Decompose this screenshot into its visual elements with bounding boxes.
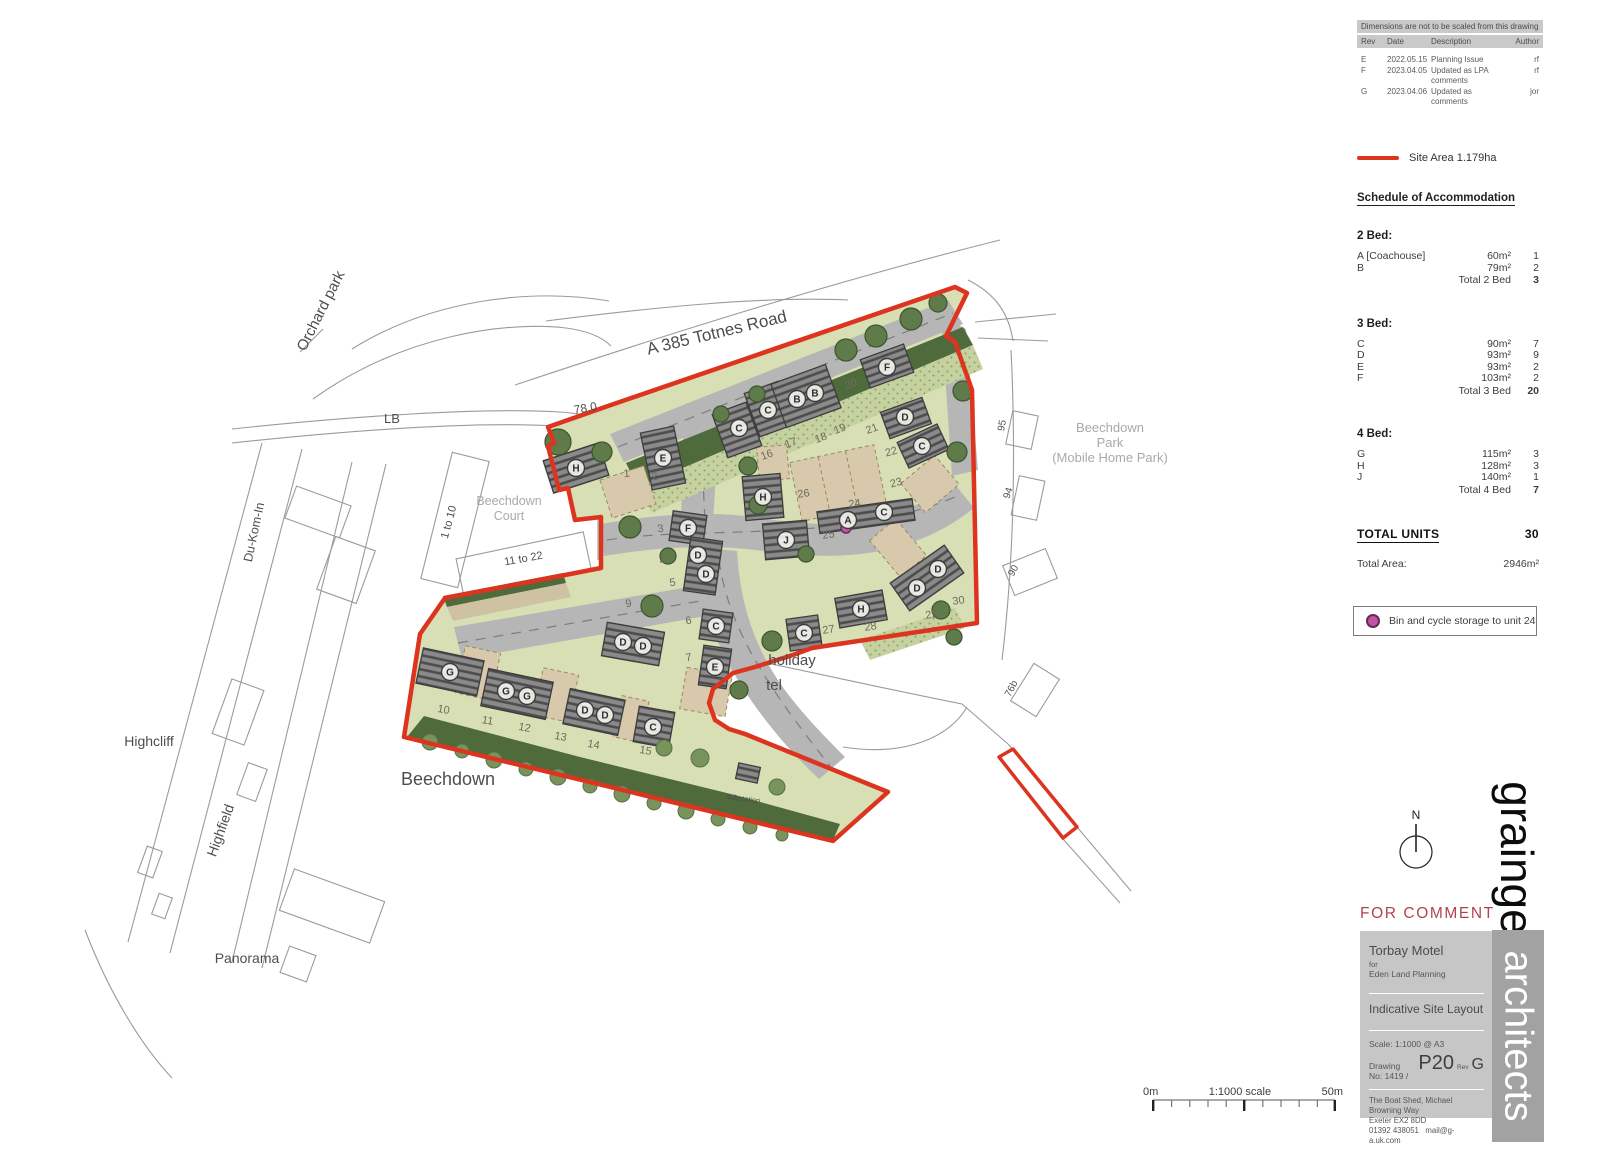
- svg-text:D: D: [702, 570, 709, 581]
- status-stamp: FOR COMMENT: [1360, 905, 1495, 923]
- svg-text:C: C: [880, 508, 887, 519]
- plot-number: 11: [481, 714, 494, 728]
- divider: [1369, 1089, 1484, 1090]
- svg-text:G: G: [446, 668, 454, 679]
- revision-rows: E2022.05.15Planning IssuerfF2023.04.05Up…: [1357, 55, 1543, 108]
- site-area-line-swatch: [1357, 156, 1399, 160]
- revision-column: Author: [1507, 37, 1539, 46]
- total-units-row: TOTAL UNITS 30: [1357, 527, 1539, 543]
- unit-marker: C: [708, 618, 725, 635]
- schedule-row: B79m²2: [1357, 263, 1539, 275]
- svg-text:D: D: [934, 565, 941, 576]
- unit-marker: D: [615, 634, 632, 651]
- street-label: (Mobile Home Park): [1052, 450, 1168, 465]
- plot-number: 27: [822, 623, 836, 637]
- drawing-number-row: Drawing No: 1419 / P20 Rev G: [1369, 1052, 1484, 1081]
- street-label: tel: [766, 677, 782, 694]
- brand-strip: architects: [1492, 930, 1544, 1142]
- schedule-total-row: Total 2 Bed3: [1357, 275, 1539, 287]
- practice-address: The Boat Shed, Michael Browning Way Exet…: [1369, 1096, 1484, 1146]
- contact-line: 01392 438051 mail@g-a.uk.com: [1369, 1126, 1484, 1146]
- unit-marker: D: [690, 547, 707, 564]
- street-label: 11 to 22: [503, 550, 543, 569]
- svg-text:J: J: [783, 536, 789, 547]
- unit-marker: C: [914, 438, 931, 455]
- drawing-sheet: Orchard parkLBA 385 Totnes Road78.0Du-Ko…: [0, 0, 1600, 1166]
- svg-text:H: H: [857, 605, 864, 616]
- svg-text:D: D: [901, 413, 908, 424]
- svg-text:B: B: [793, 395, 800, 406]
- unit-marker: D: [909, 580, 926, 597]
- svg-text:D: D: [639, 642, 646, 653]
- unit-marker: D: [597, 707, 614, 724]
- scale-row: Scale: 1:1000 @ A3: [1369, 1039, 1484, 1049]
- plot-number: 10: [436, 703, 450, 717]
- revision-table: Dimensions are not to be scaled from thi…: [1357, 20, 1543, 108]
- unit-marker: A: [840, 512, 857, 529]
- unit-marker: C: [796, 625, 813, 642]
- svg-text:G: G: [523, 692, 531, 703]
- schedule-group: 2 Bed:A [Coachouse]60m²1B79m²2Total 2 Be…: [1357, 230, 1539, 287]
- divider: [1369, 993, 1484, 994]
- street-label: 76b: [1003, 678, 1021, 698]
- schedule-body: 2 Bed:A [Coachouse]60m²1B79m²2Total 2 Be…: [1357, 230, 1539, 570]
- plot-number: 13: [553, 730, 567, 744]
- north-arrow-icon: [1396, 822, 1436, 872]
- unit-marker: C: [645, 719, 662, 736]
- divider: [1369, 1030, 1484, 1031]
- unit-marker: D: [897, 409, 914, 426]
- svg-text:C: C: [735, 424, 742, 435]
- street-label: Beechdown: [1076, 420, 1144, 435]
- schedule-row: J140m²1: [1357, 472, 1539, 484]
- scale-bar-right: 50m: [1322, 1086, 1343, 1098]
- scale-bar-center: 1:1000 scale: [1209, 1086, 1271, 1098]
- unit-marker: E: [655, 450, 672, 467]
- plot-number: 14: [586, 738, 600, 752]
- scale-bar: 0m 1:1000 scale 50m: [1143, 1086, 1343, 1119]
- svg-text:H: H: [572, 464, 579, 475]
- unit-marker: E: [707, 659, 724, 676]
- title-block: Torbay Motel for Eden Land Planning Indi…: [1360, 931, 1493, 1118]
- svg-text:H: H: [759, 493, 766, 504]
- revision-row: F2023.04.05Updated as LPA commentsrf: [1361, 66, 1539, 87]
- plot-number: 25: [822, 528, 836, 542]
- scaling-note: Dimensions are not to be scaled from thi…: [1357, 20, 1543, 33]
- bin-storage-legend: Bin and cycle storage to unit 24: [1353, 606, 1537, 636]
- unit-marker: F: [879, 359, 896, 376]
- plot-number: 24: [848, 497, 862, 511]
- svg-text:D: D: [581, 706, 588, 717]
- rev-label: Rev: [1457, 1064, 1469, 1071]
- street-label: 90: [1006, 563, 1021, 578]
- address-line-1: The Boat Shed, Michael Browning Way: [1369, 1096, 1484, 1116]
- street-label: Highcliff: [124, 733, 174, 749]
- schedule-group: 3 Bed:C90m²7D93m²9E93m²2F103m²2Total 3 B…: [1357, 318, 1539, 398]
- svg-text:B: B: [811, 389, 818, 400]
- street-label: 1 to 10: [439, 504, 459, 540]
- revision-row: E2022.05.15Planning Issuerf: [1361, 55, 1539, 66]
- total-area-label: Total Area:: [1357, 558, 1407, 570]
- plot-number: 12: [517, 721, 531, 735]
- drawing-title: Indicative Site Layout: [1369, 1002, 1484, 1016]
- for-label: for: [1369, 960, 1484, 969]
- unit-marker: C: [731, 420, 748, 437]
- unit-marker: G: [442, 664, 459, 681]
- street-label: Beechdown: [401, 769, 495, 789]
- revision-columns: RevDateDescriptionAuthor: [1357, 35, 1543, 48]
- total-units-value: 30: [1525, 527, 1539, 543]
- svg-text:D: D: [913, 584, 920, 595]
- unit-marker: F: [680, 520, 697, 537]
- unit-marker: J: [778, 532, 795, 549]
- plot-number: 15: [638, 744, 652, 758]
- schedule-total-row: Total 3 Bed20: [1357, 386, 1539, 398]
- svg-text:D: D: [601, 711, 608, 722]
- unit-marker: H: [755, 489, 772, 506]
- svg-text:F: F: [884, 363, 890, 374]
- drawing-no-label: Drawing No: 1419 /: [1369, 1061, 1415, 1081]
- total-area-value: 2946m²: [1503, 558, 1539, 570]
- revision-column: Description: [1431, 37, 1507, 46]
- north-label: N: [1396, 808, 1436, 822]
- schedule-row: E93m²2: [1357, 362, 1539, 374]
- schedule-row: H128m²3: [1357, 461, 1539, 473]
- svg-text:E: E: [660, 454, 667, 465]
- scale-bar-ruler: [1143, 1098, 1343, 1114]
- address-line-2: Exeter EX2 8DD: [1369, 1116, 1484, 1126]
- plot-number: 30: [952, 594, 966, 608]
- revision-column: Date: [1387, 37, 1431, 46]
- schedule-row: A [Coachouse]60m²1: [1357, 251, 1539, 263]
- svg-text:D: D: [619, 638, 626, 649]
- plot-number: 26: [797, 487, 811, 501]
- client-name: Eden Land Planning: [1369, 969, 1484, 979]
- scale-bar-left: 0m: [1143, 1086, 1158, 1098]
- street-label: Beechdown: [476, 494, 541, 508]
- schedule-groups: 2 Bed:A [Coachouse]60m²1B79m²2Total 2 Be…: [1357, 230, 1539, 496]
- street-label: Panorama: [215, 950, 280, 966]
- unit-marker: H: [568, 460, 585, 477]
- schedule-row: F103m²2: [1357, 373, 1539, 385]
- bin-dot-icon: [1366, 614, 1380, 628]
- brand-suffix: architects: [1496, 950, 1541, 1121]
- unit-marker: D: [577, 702, 594, 719]
- schedule-total-row: Total 4 Bed7: [1357, 485, 1539, 497]
- revision-column: Rev: [1361, 37, 1387, 46]
- street-label: Park: [1097, 435, 1124, 450]
- unit-marker: G: [498, 683, 515, 700]
- svg-text:C: C: [918, 442, 925, 453]
- brand-name: grainge: [1490, 781, 1544, 934]
- unit-marker: D: [635, 638, 652, 655]
- svg-text:G: G: [502, 687, 510, 698]
- svg-text:C: C: [649, 723, 656, 734]
- street-label: Orchard park: [294, 268, 349, 354]
- unit-marker: C: [760, 402, 777, 419]
- sheet-number: P20: [1418, 1052, 1454, 1075]
- schedule-row: D93m²9: [1357, 350, 1539, 362]
- rev-value: G: [1472, 1056, 1484, 1074]
- site-area-legend: Site Area 1.179ha: [1357, 152, 1543, 164]
- svg-text:A: A: [844, 516, 851, 527]
- schedule-group: 4 Bed:G115m²3H128m²3J140m²1Total 4 Bed7: [1357, 428, 1539, 496]
- phone: 01392 438051: [1369, 1126, 1419, 1135]
- north-arrow: N: [1396, 808, 1436, 877]
- scale-value: 1:1000 @ A3: [1395, 1039, 1444, 1049]
- svg-text:C: C: [800, 629, 807, 640]
- schedule-title: Schedule of Accommodation: [1357, 192, 1515, 206]
- svg-text:C: C: [764, 406, 771, 417]
- total-units-label: TOTAL UNITS: [1357, 527, 1439, 543]
- plot-number: 29: [925, 608, 939, 622]
- svg-text:E: E: [712, 663, 719, 674]
- street-label: Highfield: [203, 802, 237, 859]
- scale-bar-labels: 0m 1:1000 scale 50m: [1143, 1086, 1343, 1098]
- unit-marker: D: [698, 566, 715, 583]
- svg-text:D: D: [694, 551, 701, 562]
- unit-marker: H: [853, 601, 870, 618]
- unit-marker: B: [789, 391, 806, 408]
- street-label: LB: [384, 411, 400, 426]
- site-area-label: Site Area 1.179ha: [1409, 152, 1496, 164]
- street-label: holiday: [768, 652, 816, 669]
- svg-text:F: F: [685, 524, 691, 535]
- svg-text:C: C: [712, 622, 719, 633]
- street-label: Court: [494, 509, 525, 523]
- schedule-row: G115m²3: [1357, 449, 1539, 461]
- access-strip-boundary: [999, 749, 1077, 838]
- schedule-row: C90m²7: [1357, 339, 1539, 351]
- bin-storage-label: Bin and cycle storage to unit 24: [1389, 615, 1536, 627]
- street-label: 95: [996, 419, 1009, 432]
- unit-marker: C: [876, 504, 893, 521]
- revision-row: G2023.04.06Updated as commentsjor: [1361, 87, 1539, 108]
- unit-marker: B: [807, 385, 824, 402]
- total-area-row: Total Area: 2946m²: [1357, 558, 1539, 570]
- unit-marker: G: [519, 688, 536, 705]
- unit-marker: D: [930, 561, 947, 578]
- street-label: Du-Kom-In: [241, 501, 267, 563]
- scale-label: Scale:: [1369, 1039, 1393, 1049]
- project-title: Torbay Motel: [1369, 943, 1484, 958]
- plot-number: 28: [864, 620, 878, 634]
